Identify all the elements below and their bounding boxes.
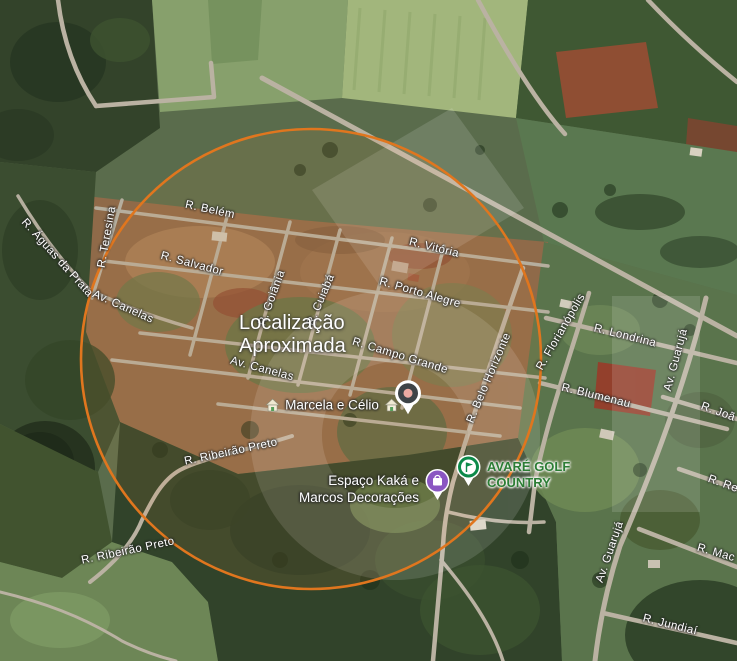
golf-flag-pin-icon xyxy=(455,454,482,487)
poi-label-avare-line2: COUNTRY xyxy=(487,475,570,491)
poi-espaco-kaka[interactable]: Espaço Kaká e Marcos Decorações xyxy=(299,468,451,510)
poi-label-avare-line1: AVARÉ GOLF xyxy=(487,459,570,475)
poi-label-espaco-line1: Espaço Kaká e xyxy=(299,472,419,489)
poi-marcela-e-celio[interactable]: Marcela e Célio xyxy=(265,398,399,413)
poi-avare-golf-country[interactable]: AVARÉ GOLF COUNTRY xyxy=(455,454,570,496)
poi-label-marcela: Marcela e Célio xyxy=(285,398,379,413)
approximate-area-circle xyxy=(81,129,541,589)
lodging-house-icon xyxy=(265,399,280,412)
satellite-map[interactable]: R. Belém R. Vitória R. Salvador R. Porto… xyxy=(0,0,737,661)
location-pin-icon[interactable] xyxy=(393,379,423,415)
poi-label-espaco-line2: Marcos Decorações xyxy=(299,489,419,506)
event-venue-pin-icon xyxy=(424,468,451,501)
approximate-location-label: Localização Aproximada xyxy=(239,312,346,358)
